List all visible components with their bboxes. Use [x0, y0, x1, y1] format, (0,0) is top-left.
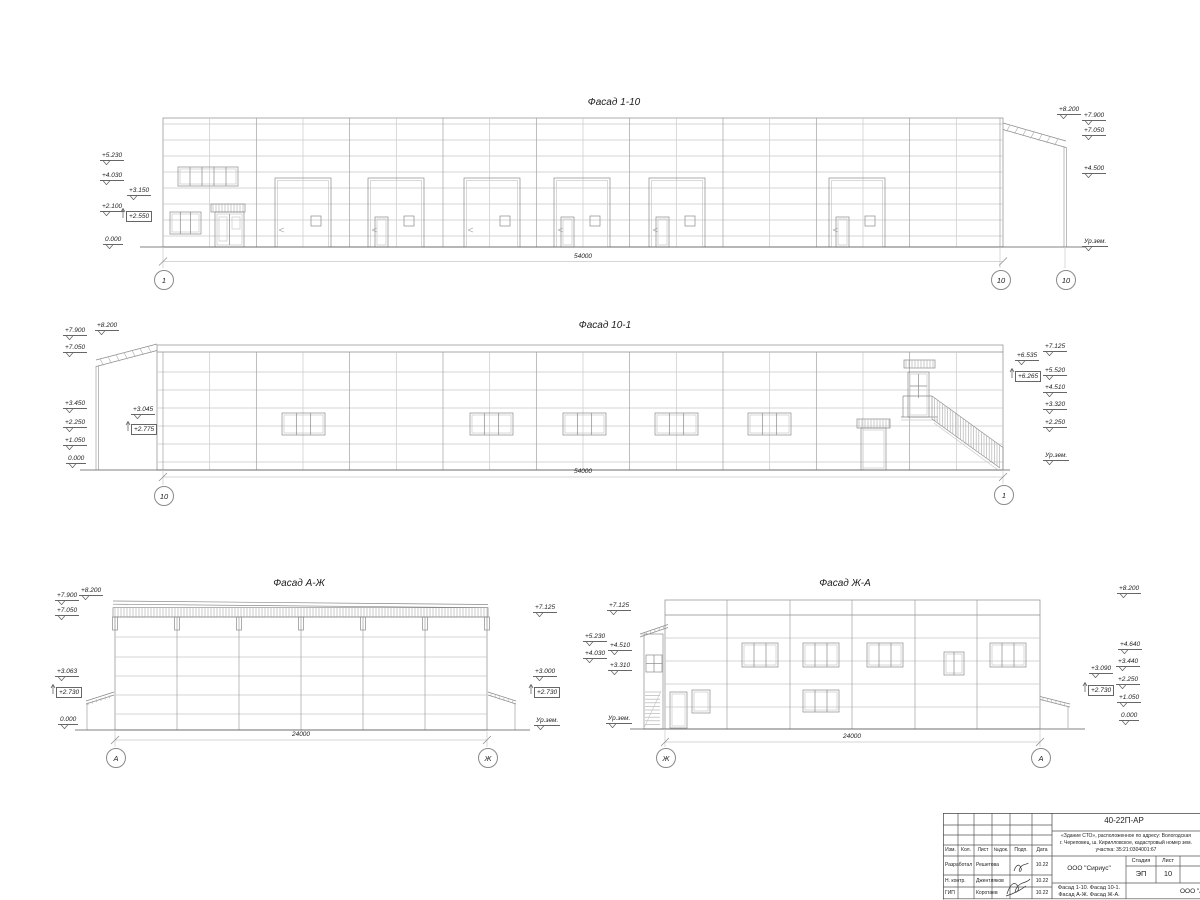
elevation-mark: 0.000 [1119, 712, 1139, 721]
titleblock-header-col: №док. [994, 847, 1009, 853]
elevation-mark: +8.200 [1117, 585, 1141, 594]
titleblock-name: Решетова [976, 862, 999, 868]
elevation-mark: +7.900 [1082, 112, 1106, 121]
elevation-mark: +7.125 [533, 604, 557, 613]
axis-bubble-А: А [106, 748, 126, 768]
elevation-mark: +3.150 [127, 187, 151, 196]
elevation-mark: +7.900 [55, 592, 79, 601]
signature-strokes [1006, 863, 1030, 896]
elevation-mark: 0.000 [66, 455, 86, 464]
dimension-label: 24000 [292, 731, 310, 738]
elevation-mark: +5.520 [1043, 367, 1067, 376]
titleblock-stage-label: Стадия [1132, 858, 1151, 864]
elevation-mark: +3.045 [131, 406, 155, 415]
titleblock-name: Коротаев [976, 890, 998, 896]
titleblock-desc-line3: участка: 35:21:0304001:67 [1096, 847, 1157, 853]
elevation-mark: +2.250 [1116, 676, 1140, 685]
dimension-label: 54000 [574, 253, 592, 260]
titleblock-sheet-title-line2: Фасад А-Ж. Фасад Ж-А. [1058, 892, 1119, 898]
ground-level-mark: Ур.зем. [606, 715, 632, 724]
titleblock-stage-value: ЭП [1136, 869, 1147, 878]
facade-linework [0, 0, 1200, 900]
ground-level-mark: Ур.зем. [1082, 238, 1108, 247]
titleblock-header-col: Дата [1036, 847, 1047, 853]
elevation-mark: +3.063 [55, 668, 79, 677]
elevation-mark: +2.730 [56, 687, 82, 698]
axis-bubble-Ж: Ж [478, 748, 498, 768]
drawing-sheet: Фасад 1-10 Фасад 10-1 Фасад А-Ж Фасад Ж-… [0, 0, 1200, 900]
elevation-mark: +4.510 [1043, 384, 1067, 393]
axis-bubble-1: 1 [994, 485, 1014, 505]
axis-bubble-10: 10 [1056, 270, 1076, 290]
elevation-mark: +2.250 [1043, 419, 1067, 428]
titleblock-date: 10.22 [1036, 878, 1049, 884]
axis-bubble-Ж: Ж [656, 748, 676, 768]
facade-a-j-title: Фасад А-Ж [273, 578, 325, 589]
elevation-mark: +4.500 [1082, 165, 1106, 174]
elevation-mark: 0.000 [103, 236, 123, 245]
facade-j-a-title: Фасад Ж-А [819, 578, 871, 589]
titleblock-role: Разработал [945, 862, 972, 868]
titleblock-role: Н. контр. [945, 878, 966, 884]
axis-bubble-10: 10 [991, 270, 1011, 290]
elevation-mark: +7.125 [1043, 343, 1067, 352]
facade-10-1-drawing [80, 344, 1010, 485]
titleblock-client-org: ООО "Ар [1180, 888, 1200, 895]
ground-level-mark: Ур.зем. [534, 717, 560, 726]
elevation-mark: +7.125 [607, 602, 631, 611]
titleblock-sheet-label: Лист [1162, 858, 1174, 864]
axis-bubble-10: 10 [154, 486, 174, 506]
titleblock-header-col: Кол. [961, 847, 971, 853]
elevation-mark: +4.640 [1118, 641, 1142, 650]
elevation-mark: 0.000 [58, 716, 78, 725]
titleblock-sheet-number: 10 [1164, 869, 1172, 878]
dimension-label: 54000 [574, 468, 592, 475]
elevation-mark: +2.730 [534, 687, 560, 698]
elevation-mark: +7.900 [63, 327, 87, 336]
elevation-mark: +3.310 [608, 662, 632, 671]
titleblock-desc-line2: г. Череповец, ш. Кирилловское, кадастров… [1060, 840, 1192, 846]
elevation-mark: +2.775 [131, 424, 157, 435]
elevation-mark: +4.510 [608, 642, 632, 651]
elevation-mark: +5.230 [100, 152, 124, 161]
elevation-mark: +8.200 [1057, 106, 1081, 115]
elevation-mark: +7.050 [63, 344, 87, 353]
elevation-mark: +3.090 [1089, 665, 1113, 674]
titleblock-date: 10.22 [1036, 890, 1049, 896]
elevation-mark: +6.265 [1015, 371, 1041, 382]
facade-10-1-title: Фасад 10-1 [579, 320, 631, 331]
facade-1-10-drawing [140, 118, 1085, 268]
facade-j-a-drawing [630, 600, 1085, 747]
titleblock-header-col: Изм. [945, 847, 956, 853]
titleblock-header-col: Подп. [1014, 847, 1027, 853]
elevation-mark: +2.730 [1088, 685, 1114, 696]
facade-a-j-drawing [75, 601, 530, 747]
titleblock-date: 10.22 [1036, 862, 1049, 868]
elevation-mark: +2.250 [63, 419, 87, 428]
elevation-mark: +1.050 [63, 437, 87, 446]
elevation-mark: +1.050 [1117, 694, 1141, 703]
axis-bubble-1: 1 [154, 270, 174, 290]
elevation-mark: +8.200 [79, 587, 103, 596]
elevation-mark: +6.535 [1015, 352, 1039, 361]
elevation-mark: +2.550 [126, 211, 152, 222]
elevation-mark: +3.320 [1043, 401, 1067, 410]
titleblock-sheet-title-line1: Фасад 1-10. Фасад 10-1. [1058, 885, 1120, 891]
titleblock-desc-line1: «Здание СТО», расположенное по адресу: В… [1061, 833, 1191, 839]
elevation-mark: +7.050 [55, 607, 79, 616]
elevation-mark: +8.200 [95, 322, 119, 331]
titleblock-design-org: ООО "Сириус" [1067, 865, 1111, 872]
elevation-mark: +4.030 [583, 650, 607, 659]
elevation-mark: +4.030 [100, 172, 124, 181]
elevation-mark: +5.230 [583, 633, 607, 642]
titleblock-header-col: Лист [978, 847, 989, 853]
facade-1-10-title: Фасад 1-10 [588, 97, 640, 108]
elevation-mark: +3.450 [63, 400, 87, 409]
titleblock-role: ГИП [945, 890, 955, 896]
titleblock-doc-code: 40-22П-АР [1104, 816, 1144, 825]
titleblock-name: Джентляков [976, 878, 1004, 884]
elevation-mark: +7.050 [1082, 127, 1106, 136]
dimension-label: 24000 [843, 733, 861, 740]
axis-bubble-А: А [1031, 748, 1051, 768]
elevation-mark: +3.000 [533, 668, 557, 677]
elevation-mark: +3.440 [1116, 658, 1140, 667]
ground-level-mark: Ур.зем. [1043, 452, 1069, 461]
